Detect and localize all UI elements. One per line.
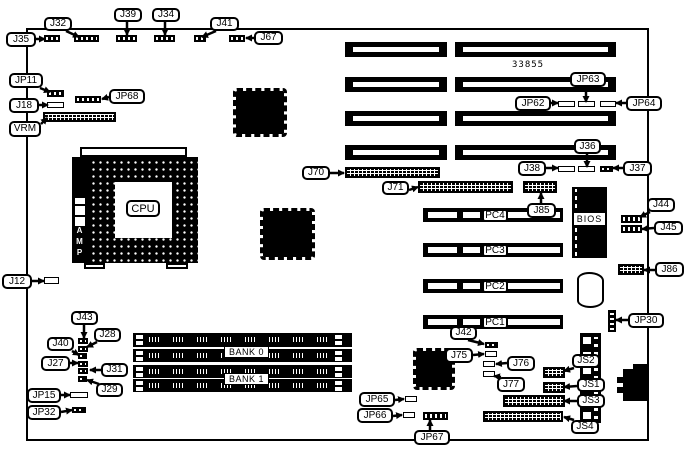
pointer-jp32: [61, 410, 72, 412]
pointer-js4: [564, 417, 574, 420]
callout-j12: J12: [2, 274, 32, 289]
pointer-j40: [72, 351, 79, 355]
pointer-jp65: [395, 399, 404, 400]
callout-js2: JS2: [572, 354, 600, 368]
callout-j45: J45: [654, 221, 683, 235]
pointer-j32: [66, 31, 79, 37]
pointer-jp68: [102, 97, 109, 99]
bank-label-bank-0: BANK 0: [224, 346, 269, 358]
slot-label-pc1: PC1: [482, 316, 508, 329]
callout-jp68: JP68: [109, 89, 145, 104]
bank-label-bank-1: BANK 1: [224, 373, 269, 385]
callout-jp64: JP64: [626, 96, 662, 111]
callout-j32: J32: [44, 17, 72, 31]
callout-j42: J42: [450, 326, 477, 340]
callout-jp65: JP65: [359, 392, 395, 407]
callout-j70: J70: [302, 166, 330, 180]
callout-j39: J39: [114, 8, 142, 22]
callout-j71: J71: [382, 181, 409, 195]
callout-j77: J77: [497, 377, 525, 392]
callout-j43: J43: [71, 311, 98, 325]
callout-j86: J86: [655, 262, 684, 277]
pointer-j75: [473, 354, 484, 355]
callout-jp30: JP30: [628, 313, 664, 328]
callout-jp32: JP32: [27, 405, 61, 420]
pointer-j41: [202, 31, 216, 37]
callout-j76: J76: [507, 356, 535, 371]
callout-j28: J28: [94, 328, 121, 342]
callout-j18: J18: [9, 98, 39, 113]
callout-jp62: JP62: [515, 96, 551, 111]
callout-js3: JS3: [577, 394, 605, 408]
callout-j36: J36: [574, 139, 601, 154]
pointer-js2: [564, 368, 574, 371]
pointer-js1: [564, 386, 577, 387]
cpu-label: CPU: [126, 200, 160, 217]
callout-j67: J67: [254, 31, 283, 45]
callout-j41: J41: [210, 17, 239, 31]
pointer-j28: [87, 342, 97, 347]
callout-vrm: VRM: [9, 121, 41, 137]
callout-js1: JS1: [577, 378, 605, 392]
pointer-jp66: [393, 415, 402, 416]
callout-j75: J75: [445, 348, 473, 363]
pointer-j42: [468, 340, 484, 344]
callout-jp63: JP63: [570, 72, 606, 87]
pointer-j44: [640, 212, 650, 217]
callout-j35: J35: [6, 32, 36, 47]
slot-label-pc2: PC2: [482, 280, 508, 293]
slot-label-pc4: PC4: [482, 209, 508, 222]
callout-j34: J34: [152, 8, 180, 22]
pointer-jp11: [40, 88, 50, 92]
callout-j37: J37: [623, 161, 652, 176]
bios-label: BIOS: [573, 212, 606, 226]
callout-jp67: JP67: [414, 430, 450, 445]
pointer-vrm: [41, 118, 47, 124]
callout-j40: J40: [47, 337, 74, 351]
callout-js4: JS4: [571, 420, 599, 434]
callout-jp11: JP11: [9, 73, 43, 88]
callout-j38: J38: [518, 161, 546, 176]
slot-label-pc3: PC3: [482, 244, 508, 257]
callout-j44: J44: [647, 198, 675, 212]
callout-j29: J29: [96, 383, 123, 397]
pointer-j76: [496, 363, 507, 364]
motherboard-diagram: AMP CPU 33855 BIOS: [0, 0, 686, 454]
callout-j31: J31: [101, 363, 128, 377]
callout-jp15: JP15: [27, 388, 61, 403]
pointer-j45: [642, 228, 654, 229]
callout-jp66: JP66: [357, 408, 393, 423]
callout-j85: J85: [527, 203, 556, 218]
callout-j27: J27: [41, 356, 70, 371]
pointer-j71: [409, 187, 418, 190]
